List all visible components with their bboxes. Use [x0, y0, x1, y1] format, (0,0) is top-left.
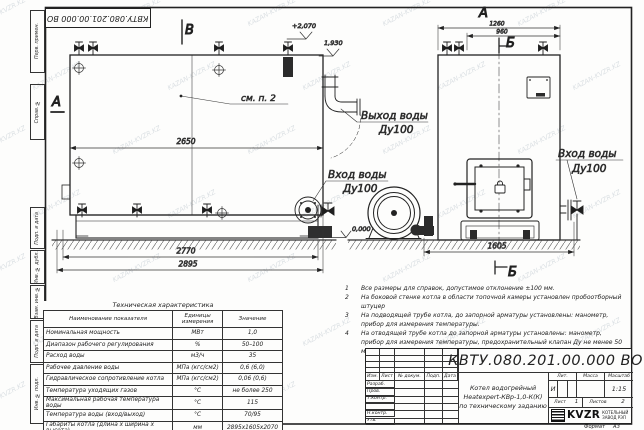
- callouts: см. п. 2 Выход воды Ду100 Вход воды Ду10…: [180, 94, 623, 201]
- table-row: Температура воды (вход/выход)°С70/95: [44, 410, 283, 422]
- margin-box-sprav-no: Справ. №: [30, 84, 45, 140]
- sheets-value: 2: [613, 398, 633, 407]
- side-view: [62, 42, 360, 238]
- elevation-marks: +2,070 1,930 0,000: [287, 22, 371, 238]
- table-row: Расход водым3/ч35: [44, 351, 283, 363]
- tech-header-row: Наименование показателя Единицы измерени…: [44, 311, 283, 328]
- margin-box-inv-dubl: Инв. № дубл.: [30, 250, 45, 284]
- col-header: Значение: [223, 311, 283, 328]
- col-docnum: № докум.: [395, 373, 425, 381]
- elev-2070: +2,070: [292, 22, 316, 30]
- note-item: 1Все размеры для справок, допустимое отк…: [345, 284, 623, 293]
- table-row: Диапазон рабочего регулирования%50–100: [44, 339, 283, 351]
- inlet-water-right-label: Вход воды Ду100: [556, 148, 623, 199]
- svg-text:Вход воды: Вход воды: [558, 148, 617, 160]
- scale-label: Масштаб: [605, 373, 633, 381]
- elev-1930: 1,930: [324, 39, 343, 47]
- roof-stub: [283, 57, 293, 77]
- col-list: Лист: [380, 373, 395, 381]
- center-mark: [216, 207, 229, 220]
- lit-label: Лит.: [549, 373, 577, 381]
- section-label-b-top: Б: [506, 36, 515, 51]
- note-item: 3На подводящей трубе котла, до запорной …: [345, 311, 623, 329]
- outlet-pipe: [322, 75, 360, 158]
- tech-table-title: Техническая характеристика: [43, 301, 283, 309]
- drawing-name: Котел водогрейный Heatexpert-КВр-1,0-К(К…: [458, 373, 549, 423]
- format-label: Формат А3: [584, 424, 620, 430]
- col-data: Дата: [443, 373, 458, 381]
- inlet-water-left-label: Вход воды Ду100: [313, 169, 388, 201]
- dim-2770: 2770: [176, 247, 195, 256]
- dim-1605: 1605: [487, 242, 506, 251]
- view-label-v: В: [185, 23, 194, 38]
- section-label-b-bottom: Б: [508, 265, 517, 280]
- doc-number: КВТУ.080.201.00.000 ВО: [458, 349, 633, 373]
- sheets-label: Листов: [583, 398, 613, 407]
- right-inlet-valve: [560, 200, 583, 240]
- margin-box-podp-data-1: Подп. и дата: [30, 207, 45, 249]
- row-utv: Утв.: [366, 418, 395, 425]
- col-izm: Изм.: [366, 373, 380, 381]
- tech-characteristics: Техническая характеристика Наименование …: [43, 301, 283, 430]
- table-row: Рабочее давление водыМПа (кгс/см2)0,6 (6…: [44, 362, 283, 374]
- center-mark: [213, 64, 226, 77]
- dim-960: 960: [496, 29, 508, 36]
- inlet-flange: [295, 197, 334, 238]
- table-row: Габариты котла (длина х ширина х высота)…: [44, 421, 283, 430]
- lit-value: И: [549, 381, 558, 398]
- revision-rows: [366, 349, 458, 373]
- table-row: Номинальная мощностьМВт1,0: [44, 328, 283, 340]
- padlock-icon: [495, 181, 505, 193]
- center-mark: [73, 157, 86, 170]
- roof-valve-icons: [75, 42, 293, 55]
- rotated-doc-number-stamp: КВТУ.080.201.00.000 ВО: [45, 8, 151, 28]
- row-tkontr: Т.контр.: [366, 396, 395, 403]
- scale-value: 1:15: [605, 381, 633, 398]
- door-latch: [524, 179, 530, 190]
- table-row: Гидравлическое сопротивление котлаМПа (к…: [44, 374, 283, 386]
- svg-text:Ду100: Ду100: [342, 183, 378, 195]
- section-label-a: А: [51, 95, 61, 110]
- dim-2895: 2895: [178, 260, 197, 269]
- front-view: [366, 42, 583, 245]
- margin-box-perv-primen: Перв. примен.: [30, 10, 45, 73]
- dim-2650: 2650: [176, 137, 195, 146]
- col-header: Наименование показателя: [44, 311, 173, 328]
- kvzr-logo-icon: [551, 409, 565, 422]
- col-header: Единицы измерения: [173, 311, 223, 328]
- row-empty: [366, 403, 395, 410]
- drawing-sheet: KAZAN-KVZR.KZKAZAN-KVZR.KZKAZAN-KVZR.KZK…: [0, 0, 644, 430]
- svg-text:Выход воды: Выход воды: [361, 110, 428, 122]
- base-support: [461, 221, 539, 240]
- title-block: Изм. Лист № докум. Подп. Дата Разраб. Пр…: [365, 348, 632, 424]
- mass-value: [577, 381, 605, 398]
- elev-0000: 0,000: [352, 225, 371, 233]
- company-area: KVZR КОТЕЛЬНЫЙ ЗАВОД РЭП: [549, 407, 633, 424]
- mass-label: Масса: [577, 373, 605, 381]
- furnace-door: [453, 159, 532, 218]
- row-prov: Пров.: [366, 388, 395, 395]
- row-nkontr: Н.контр.: [366, 410, 395, 417]
- notes-list: 1Все размеры для справок, допустимое отк…: [345, 284, 623, 356]
- sheet-value: 1: [571, 398, 583, 407]
- table-row: Максимальная рабочая температура воды°С1…: [44, 397, 283, 410]
- svg-text:Ду100: Ду100: [378, 124, 414, 136]
- kvzr-logo-text: KVZR: [567, 409, 600, 421]
- front-roof-valve-icons: [443, 42, 548, 55]
- svg-text:Ду100: Ду100: [571, 163, 607, 175]
- sheet-label: Лист: [549, 398, 571, 407]
- svg-text:Вход воды: Вход воды: [328, 169, 387, 181]
- peephole-hatch: [527, 77, 550, 98]
- view-label-front-a: А: [478, 6, 488, 21]
- callout-see-note: см. п. 2: [241, 94, 276, 104]
- table-row: Температура уходящих газов°Сне более 250: [44, 385, 283, 397]
- dim-1260: 1260: [489, 21, 504, 28]
- note-item: 2На боковой стенке котла в области топоч…: [345, 293, 623, 311]
- row-razrab: Разраб.: [366, 381, 395, 388]
- tech-table: Наименование показателя Единицы измерени…: [43, 310, 283, 430]
- center-mark: [73, 62, 86, 75]
- company-name: КОТЕЛЬНЫЙ ЗАВОД РЭП: [602, 410, 628, 420]
- col-podp: Подп.: [425, 373, 443, 381]
- outlet-water-label: Выход воды Ду100: [341, 109, 428, 136]
